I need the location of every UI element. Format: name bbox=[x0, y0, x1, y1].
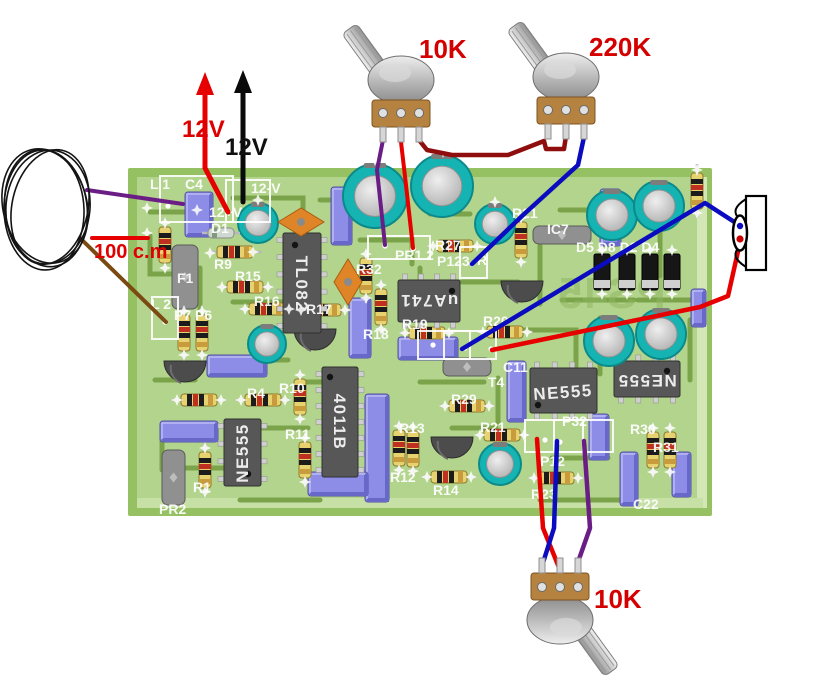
terminal-pad bbox=[542, 437, 547, 442]
silk-label: R27 bbox=[435, 237, 461, 253]
silk-label: C11 bbox=[503, 359, 528, 375]
potentiometer-220k bbox=[507, 21, 599, 139]
silk-label: R16 bbox=[254, 293, 280, 309]
silk-label: R21 bbox=[480, 419, 506, 435]
speaker-terminal-blue bbox=[737, 223, 743, 229]
silk-label: PR1 2 bbox=[395, 247, 434, 263]
silk-label: P12 bbox=[540, 453, 565, 469]
silk-label: R31 bbox=[653, 439, 679, 455]
terminal-pad bbox=[165, 203, 170, 208]
circuit-assembly-diagram: PS45 L 1 C4 12-V 12+V D1 R9 R15 R16 F1 L… bbox=[0, 0, 822, 690]
potentiometer-10k-bottom bbox=[527, 558, 619, 676]
silk-label: P123 bbox=[437, 253, 470, 269]
capacitor-electrolytic bbox=[411, 154, 473, 217]
silk-label: P7 P6 bbox=[174, 307, 212, 323]
silk-label: R9 bbox=[214, 256, 232, 272]
silk-label: C4 bbox=[185, 176, 203, 192]
coil-antenna bbox=[0, 140, 100, 273]
ic-label-ne555-left: NE555 bbox=[233, 423, 252, 482]
capacitor-film bbox=[398, 337, 458, 360]
capacitor-electrolytic bbox=[634, 180, 684, 231]
pot1-value-label: 10K bbox=[419, 34, 467, 64]
capacitor-electrolytic bbox=[587, 189, 637, 240]
silk-label: R4 bbox=[247, 385, 265, 401]
silk-label: R30 bbox=[630, 421, 656, 437]
pot3-value-label: 10K bbox=[594, 584, 642, 614]
ic-label-ua741: uA741 bbox=[400, 291, 459, 310]
silk-label: R15 bbox=[235, 268, 261, 284]
silk-label: IC7 bbox=[547, 221, 569, 237]
capacitor-electrolytic bbox=[479, 442, 521, 485]
silk-label: F1 bbox=[177, 270, 194, 286]
pot-link-wire-dark-red bbox=[419, 136, 566, 155]
silk-label: D5 D8 D2 D4 bbox=[576, 239, 659, 255]
capacitor-electrolytic bbox=[475, 203, 515, 244]
silk-label: R14 bbox=[433, 482, 459, 498]
ic-label-4011b: 4011B bbox=[330, 394, 349, 451]
silk-label: R1 bbox=[193, 479, 211, 495]
ic-label-ne555-right: NE555 bbox=[617, 371, 676, 390]
silk-label: L 1 bbox=[150, 176, 170, 192]
silk-label: R11 bbox=[285, 426, 310, 442]
silk-label: R13 bbox=[399, 420, 425, 436]
capacitor-film bbox=[365, 394, 389, 502]
silk-label: R18 bbox=[363, 326, 389, 342]
capacitor-film bbox=[160, 421, 218, 442]
speaker bbox=[733, 196, 766, 270]
silk-label: R12 bbox=[390, 469, 416, 485]
silk-label: T4 bbox=[488, 374, 505, 390]
silk-label: 12-V bbox=[251, 180, 281, 196]
speaker-terminal-red bbox=[736, 235, 743, 242]
silk-label: R32 bbox=[356, 261, 382, 277]
silk-label: R19 bbox=[402, 316, 428, 332]
terminal-pad bbox=[430, 342, 435, 347]
silk-label: PR2 bbox=[159, 501, 186, 517]
silk-label: D1 bbox=[211, 220, 229, 236]
coil-length-label: 100 c.m bbox=[94, 241, 167, 263]
silk-label: P32 bbox=[562, 413, 587, 429]
supply-positive-label: 12V bbox=[182, 116, 225, 143]
supply-negative-label: 12V bbox=[225, 134, 268, 161]
ic-label-tl082: TL082 bbox=[292, 256, 311, 313]
silk-label: R29 bbox=[451, 391, 477, 407]
trimmer-device bbox=[443, 358, 491, 376]
capacitor-electrolytic bbox=[343, 163, 407, 228]
capacitor-electrolytic bbox=[248, 324, 286, 363]
trimmer-device bbox=[162, 450, 185, 505]
silk-label: C22 bbox=[633, 496, 659, 512]
silk-label: R10 bbox=[279, 380, 305, 396]
pot2-value-label: 220K bbox=[589, 32, 651, 62]
